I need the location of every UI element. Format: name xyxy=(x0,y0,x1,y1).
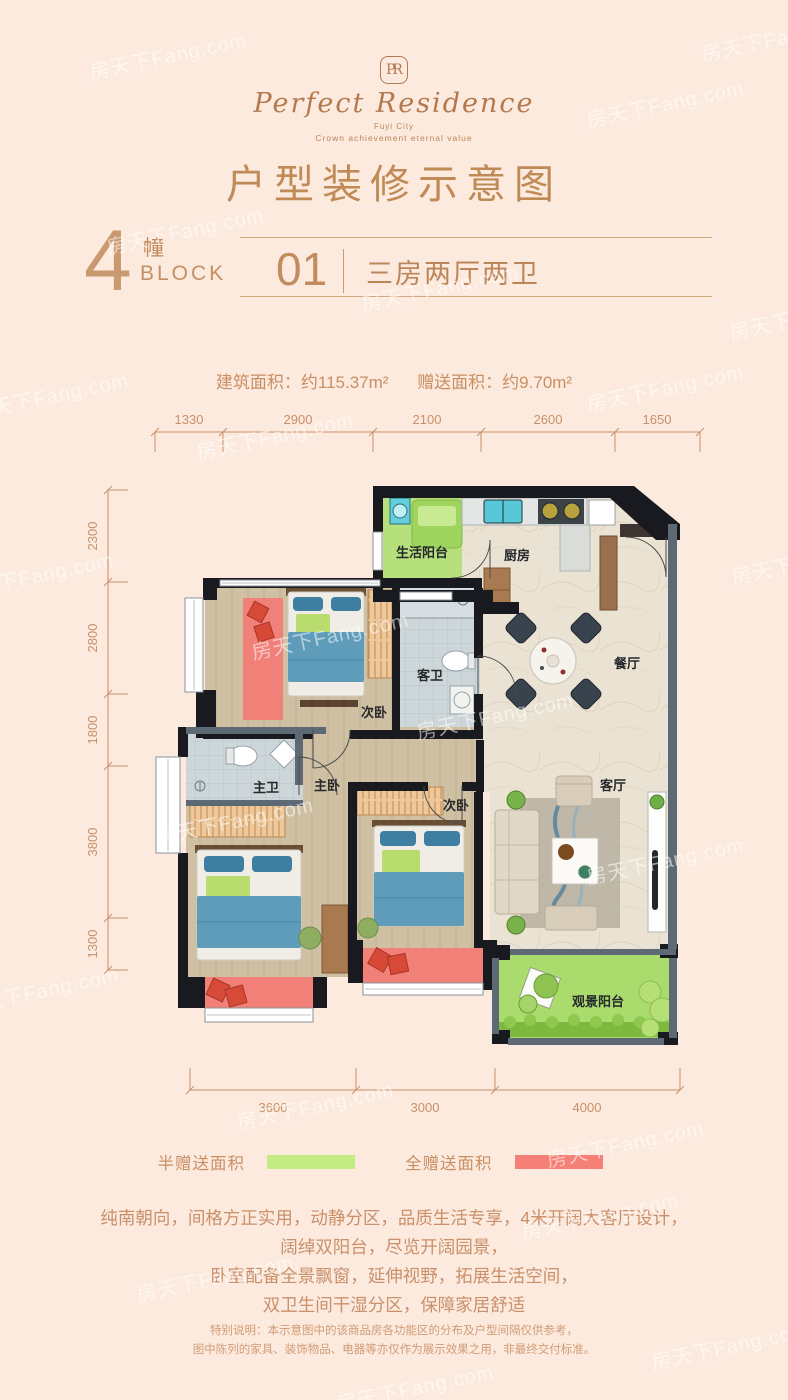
block-number: 4 xyxy=(84,218,132,304)
label-bedroom2: 次卧 xyxy=(361,705,387,720)
disclaimer: 特别说明：本示意图中的该商品房各功能区的分布及户型间隔仅供参考， 图中陈列的家具… xyxy=(0,1322,788,1360)
coffee-table xyxy=(552,838,598,884)
dim-left-2: 2800 xyxy=(85,624,100,653)
bedroom3-bed xyxy=(372,820,466,926)
master-bed xyxy=(195,845,303,960)
bedroom3-wardrobe xyxy=(357,787,443,815)
suite-number: 01 xyxy=(276,242,327,296)
master-wardrobe xyxy=(190,803,285,837)
label-guest-bath: 客卫 xyxy=(417,668,443,683)
divider-line-top xyxy=(240,237,712,238)
vertical-divider xyxy=(343,249,344,293)
watermark: 房天下Fang.com xyxy=(334,1356,496,1400)
dim-left-1: 2300 xyxy=(85,522,100,551)
dim-top-4: 2600 xyxy=(534,412,563,427)
fridge xyxy=(589,500,615,525)
floorplan-drawing: 生活阳台 厨房 餐厅 次卧 客卫 主卫 主卧 次卧 客厅 观景阳台 xyxy=(80,398,728,1150)
label-master-bedroom: 主卧 xyxy=(314,778,340,793)
label-dining: 餐厅 xyxy=(613,656,640,671)
dim-bottom-3: 4000 xyxy=(573,1100,602,1115)
dim-top-3: 2100 xyxy=(413,412,442,427)
label-kitchen: 厨房 xyxy=(504,548,530,563)
label-bedroom3: 次卧 xyxy=(443,798,469,813)
disclaimer-line: 特别说明：本示意图中的该商品房各功能区的分布及户型间隔仅供参考， xyxy=(0,1322,788,1341)
balcony-lounge xyxy=(412,500,462,548)
living-bench xyxy=(545,906,597,930)
dim-top-5: 1650 xyxy=(643,412,672,427)
brand-subtitle-city: Fuyi City xyxy=(0,122,788,131)
selling-point-line: 卧室配备全景飘窗，延伸视野，拓展生活空间， xyxy=(0,1262,788,1291)
living-plant-bottom xyxy=(507,916,525,934)
dim-top-2: 2900 xyxy=(284,412,313,427)
bedroom2-bed xyxy=(286,588,366,696)
watermark: 房天下Fang.com xyxy=(727,284,788,346)
legend-half-gift-swatch xyxy=(267,1155,355,1169)
area-info: 建筑面积：约115.37m² 赠送面积：约9.70m² xyxy=(0,368,788,393)
brand-monogram: PR xyxy=(380,56,408,84)
watermark: 房天下Fang.com xyxy=(729,529,788,591)
tv-console xyxy=(648,792,666,932)
bedroom2-tv-board xyxy=(300,700,358,707)
block-unit-en: BLOCK xyxy=(140,262,226,286)
disclaimer-line: 图中陈列的家具、装饰物品、电器等亦仅作为展示效果之用，非最终交付标准。 xyxy=(0,1341,788,1360)
dim-left-4: 3800 xyxy=(85,828,100,857)
label-master-bath: 主卫 xyxy=(253,780,279,795)
washing-machine xyxy=(390,498,410,524)
sofa xyxy=(495,810,539,914)
built-area: 建筑面积：约115.37m² xyxy=(216,373,389,392)
page-title: 户型装修示意图 xyxy=(0,152,788,210)
stove xyxy=(538,499,584,524)
dim-left-5: 1300 xyxy=(85,930,100,959)
block-unit-cn: 幢 xyxy=(143,232,164,262)
brand-subtitle-slogan: Crown achievement eternal value xyxy=(0,133,788,143)
brand-logo: PR Perfect Residence Fuyi City Crown ach… xyxy=(0,56,788,143)
gift-area-legend: 半赠送面积 全赠送面积 xyxy=(0,1150,788,1174)
entry-door-panel xyxy=(600,536,617,610)
dim-bottom-1: 3600 xyxy=(259,1100,288,1115)
label-living: 客厅 xyxy=(600,778,626,793)
selling-points: 纯南朝向，间格方正实用，动静分区，品质生活专享，4米开阔大客厅设计， 阔绰双阳台… xyxy=(0,1204,788,1320)
divider-line-bottom xyxy=(240,296,712,297)
living-plant-top xyxy=(507,791,525,809)
legend-full-gift-swatch xyxy=(515,1155,603,1169)
dim-top-1: 1330 xyxy=(175,412,204,427)
legend-half-gift-label: 半赠送面积 xyxy=(158,1150,246,1174)
dim-bottom-2: 3000 xyxy=(411,1100,440,1115)
selling-point-line: 阔绰双阳台，尽览开阔园景， xyxy=(0,1233,788,1262)
brand-name: Perfect Residence xyxy=(0,88,788,119)
floorplan-flyer: 房天下Fang.com 房天下Fang.com 房天下Fang.com 房天下F… xyxy=(0,0,788,1400)
kitchen-sink xyxy=(484,500,522,523)
legend-full-gift-label: 全赠送面积 xyxy=(405,1150,493,1174)
selling-point-line: 纯南朝向，间格方正实用，动静分区，品质生活专享，4米开阔大客厅设计， xyxy=(0,1204,788,1233)
label-view-balcony: 观景阳台 xyxy=(572,994,624,1009)
label-life-balcony: 生活阳台 xyxy=(396,545,448,560)
selling-point-line: 双卫生间干湿分区，保障家居舒适 xyxy=(0,1291,788,1320)
kitchen-cabinet xyxy=(560,525,590,571)
bedroom3-chair xyxy=(358,918,378,938)
bedroom2-wardrobe xyxy=(368,590,392,678)
dim-left-3: 1800 xyxy=(85,716,100,745)
gift-area: 赠送面积：约9.70m² xyxy=(417,373,572,392)
layout-name: 三房两厅两卫 xyxy=(366,252,540,291)
armchair xyxy=(556,776,592,806)
